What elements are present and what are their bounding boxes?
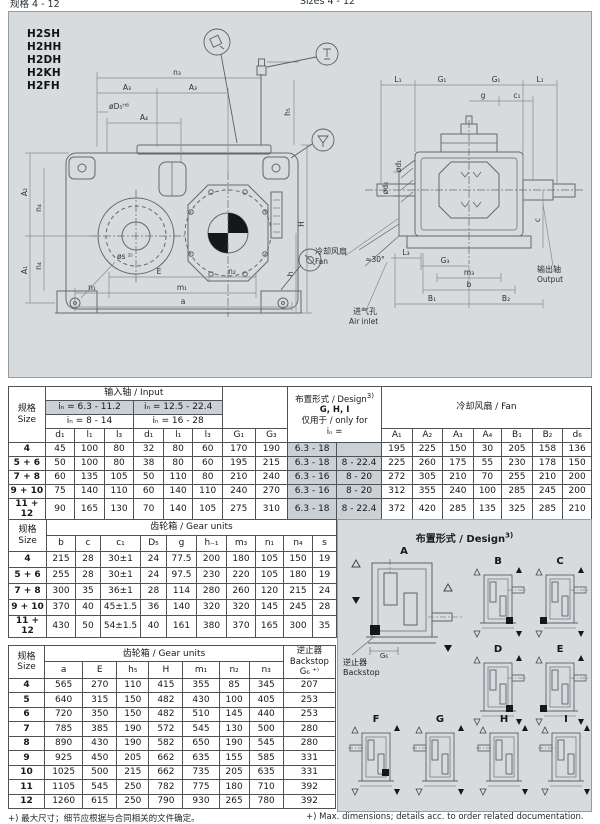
- value-cell: 210: [222, 471, 255, 485]
- value-cell: 890: [45, 736, 83, 751]
- dim-e: E: [157, 267, 162, 276]
- dim-g6: G₆: [380, 652, 388, 660]
- value-cell: 285: [443, 499, 474, 521]
- table-row: 7 + 86013510550110802102406.3 - 168 - 20…: [9, 471, 592, 485]
- value-cell: 300: [284, 616, 313, 638]
- value-cell: 585: [249, 751, 283, 766]
- value-cell: 785: [45, 722, 83, 737]
- column-letter: g: [167, 536, 197, 552]
- size-cell: 4: [9, 678, 45, 693]
- value-cell: 482: [149, 693, 183, 708]
- column-letter: D₅: [141, 536, 167, 552]
- drawing-panel: n₃ A₃ A₃ øD₅ᴴ⁸ A₄ h₅ H h A₂ n₄ A₁ n₄ øs …: [8, 11, 592, 378]
- gear-units-table-2: 规格Size 齿轮箱 / Gear units 逆止器 Backstop G₆ …: [8, 645, 336, 809]
- size-cell: 9: [9, 751, 45, 766]
- value-cell: [337, 443, 382, 457]
- model-list: H2SH H2HH H2DH H2KH H2FH: [27, 28, 61, 93]
- column-letter: B₂: [532, 429, 563, 443]
- value-cell: 105: [256, 568, 284, 584]
- value-cell: 110: [193, 485, 223, 499]
- value-cell: 30±1: [101, 568, 141, 584]
- column-letter: H: [149, 662, 183, 678]
- design-diagram-F: F: [348, 714, 404, 802]
- value-cell: 28: [76, 552, 101, 568]
- value-cell: 24: [141, 568, 167, 584]
- value-cell: 430: [47, 616, 76, 638]
- dim-n4-bottom: n₄: [34, 262, 43, 270]
- value-cell: 80: [163, 443, 193, 457]
- value-cell: 405: [249, 693, 283, 708]
- value-cell: 45±1.5: [101, 600, 141, 616]
- value-cell: 50: [134, 471, 164, 485]
- callout-output-en: Output: [537, 275, 563, 284]
- value-cell: 640: [45, 693, 83, 708]
- size-cell: 10: [9, 765, 45, 780]
- table-row: 11 + 124305054±1.54016138037016530035: [9, 616, 337, 638]
- value-cell: 135: [473, 499, 502, 521]
- input-group-header: 输入轴 / Input: [45, 387, 222, 401]
- callout-fan-en: Fan: [315, 257, 328, 266]
- value-cell: 8 - 20: [337, 485, 382, 499]
- dim-h5: h₅: [283, 108, 292, 116]
- column-letter: A₃: [443, 429, 474, 443]
- backstop-label: 逆止器 Backstop: [343, 658, 380, 678]
- gear-units-group-header: 齿轮箱 / Gear units: [47, 520, 337, 536]
- value-cell: 210: [563, 499, 592, 521]
- value-cell: 110: [104, 485, 134, 499]
- value-cell: 130: [104, 499, 134, 521]
- value-cell: 440: [249, 707, 283, 722]
- table-row: 5 + 62552830±12497.523022010518019: [9, 568, 337, 584]
- value-cell: 250: [117, 780, 149, 795]
- backstop-square: [506, 617, 513, 624]
- dim-a4: A₄: [140, 113, 148, 122]
- value-cell: 210: [443, 471, 474, 485]
- value-cell: 225: [381, 457, 412, 471]
- value-cell: 345: [249, 678, 283, 693]
- value-cell: 100: [473, 485, 502, 499]
- value-cell: 662: [149, 765, 183, 780]
- value-cell: 30: [473, 443, 502, 457]
- value-cell: 6.3 - 18: [288, 499, 337, 521]
- table-row: 42152830±12477.520018010515019: [9, 552, 337, 568]
- column-letter: c₁: [101, 536, 141, 552]
- value-cell: 240: [222, 485, 255, 499]
- design-group-header: 布置形式 / Design3) G, H, I 仅用于 / only for i…: [288, 387, 382, 443]
- callout-output-zh: 输出轴: [537, 264, 561, 274]
- value-cell: 510: [183, 707, 219, 722]
- design-panel-title: 布置形式 / Design3): [338, 530, 591, 545]
- value-cell: 6.3 - 18: [288, 457, 337, 471]
- value-cell: 200: [563, 485, 592, 499]
- callout-air-inlet-en: Air inlet: [349, 317, 378, 326]
- value-cell: 207: [283, 678, 335, 693]
- dim-a: a: [181, 297, 186, 306]
- value-cell: 155: [219, 751, 249, 766]
- table-row: 121260615250790930265780392: [9, 794, 336, 809]
- dim-l1-left: L₁: [394, 75, 401, 84]
- value-cell: 710: [249, 780, 283, 795]
- column-letter: A₁: [381, 429, 412, 443]
- value-cell: 190: [219, 736, 249, 751]
- value-cell: 30±1: [101, 552, 141, 568]
- design-letter: B: [470, 556, 526, 567]
- dim-d5: øD₅ᴴ⁸: [109, 102, 129, 111]
- model-name: H2SH: [27, 28, 61, 41]
- dim-g3: G₃: [441, 256, 450, 265]
- value-cell: 220: [227, 568, 256, 584]
- table-row: 7785385190572545130500280: [9, 722, 336, 737]
- value-cell: 255: [47, 568, 76, 584]
- value-cell: 582: [149, 736, 183, 751]
- table-row: 7 + 83003536±12811428026012021524: [9, 584, 337, 600]
- value-cell: 565: [45, 678, 83, 693]
- value-cell: 150: [117, 693, 149, 708]
- design-letter: C: [532, 556, 588, 567]
- value-cell: 245: [532, 485, 563, 499]
- gearbox-schematic: [476, 725, 532, 797]
- value-cell: 140: [75, 485, 105, 499]
- value-cell: 24: [141, 552, 167, 568]
- value-cell: 110: [117, 678, 149, 693]
- value-cell: 110: [163, 471, 193, 485]
- design-letter: D: [470, 644, 526, 655]
- value-cell: 150: [284, 552, 313, 568]
- value-cell: 215: [284, 584, 313, 600]
- g-columns-spacer: [222, 387, 287, 429]
- dim-s: øs ²⁾: [117, 252, 133, 261]
- size-header: 规格Size: [9, 646, 45, 679]
- column-letter: A₄: [473, 429, 502, 443]
- value-cell: 305: [412, 471, 443, 485]
- value-cell: 270: [255, 485, 288, 499]
- front-view-dimension-lines: [25, 62, 312, 313]
- size-cell: 4: [9, 443, 46, 457]
- design-letter: A: [344, 546, 464, 557]
- value-cell: 240: [255, 471, 288, 485]
- column-letter: n₁: [256, 536, 284, 552]
- value-cell: 355: [183, 678, 219, 693]
- dim-c1: c₁: [513, 91, 520, 100]
- value-cell: 782: [149, 780, 183, 795]
- value-cell: 200: [563, 471, 592, 485]
- dim-a1: A₁: [20, 266, 29, 274]
- table-row: 9 + 1075140110601401102402706.3 - 168 - …: [9, 485, 592, 499]
- column-letter: G₃: [255, 429, 288, 443]
- design-diagram-H: H: [476, 714, 532, 802]
- design-letter: I: [538, 714, 594, 725]
- table-row: 5 + 650100803880601952156.3 - 188 - 22.4…: [9, 457, 592, 471]
- value-cell: 320: [197, 600, 227, 616]
- value-cell: 215: [47, 552, 76, 568]
- value-cell: 230: [197, 568, 227, 584]
- value-cell: 545: [83, 780, 117, 795]
- value-cell: 245: [284, 600, 313, 616]
- input-dimensions-table: 规格Size 输入轴 / Input 布置形式 / Design3) G, H,…: [8, 386, 592, 521]
- table-row: 5640315150482430100405253: [9, 693, 336, 708]
- value-cell: 1105: [45, 780, 83, 795]
- value-cell: 280: [283, 736, 335, 751]
- value-cell: 135: [75, 471, 105, 485]
- value-cell: 178: [532, 457, 563, 471]
- column-letter: b: [47, 536, 76, 552]
- value-cell: 8 - 20: [337, 471, 382, 485]
- gearbox-schematic: [538, 725, 594, 797]
- column-letter: n₂: [219, 662, 249, 678]
- side-view: [359, 116, 585, 266]
- value-cell: 150: [117, 707, 149, 722]
- column-letter: d₆: [563, 429, 592, 443]
- size-cell: 5: [9, 693, 45, 708]
- dim-H: H: [297, 221, 306, 227]
- value-cell: 265: [219, 794, 249, 809]
- dim-n4-top: n₄: [34, 204, 43, 212]
- value-cell: 35: [76, 584, 101, 600]
- value-cell: 253: [283, 693, 335, 708]
- column-letter: m₃: [227, 536, 256, 552]
- dim-b2: B₂: [502, 294, 510, 303]
- value-cell: 28: [76, 568, 101, 584]
- value-cell: 165: [256, 616, 284, 638]
- size-cell: 11 + 12: [9, 616, 47, 638]
- value-cell: 780: [249, 794, 283, 809]
- value-cell: 195: [381, 443, 412, 457]
- value-cell: 205: [117, 751, 149, 766]
- value-cell: 500: [249, 722, 283, 737]
- value-cell: 80: [104, 457, 134, 471]
- value-cell: 77.5: [167, 552, 197, 568]
- callout-fan-zh: 冷却风扇: [315, 246, 347, 256]
- value-cell: 280: [283, 722, 335, 737]
- gearbox-schematic: [348, 725, 404, 797]
- value-cell: 180: [219, 780, 249, 795]
- value-cell: 50: [76, 616, 101, 638]
- dim-d6: ød₆: [381, 182, 390, 194]
- callout-air-inlet-zh: 进气孔: [353, 306, 377, 316]
- value-cell: 195: [222, 457, 255, 471]
- value-cell: 300: [47, 584, 76, 600]
- value-cell: 140: [167, 600, 197, 616]
- gearbox-schematic: G₆: [344, 557, 464, 661]
- column-letter: d₁: [45, 429, 75, 443]
- gear-units-group-header: 齿轮箱 / Gear units: [45, 646, 284, 662]
- size-cell: 9 + 10: [9, 485, 46, 499]
- model-name: H2FH: [27, 80, 61, 93]
- value-cell: 205: [502, 443, 533, 457]
- table-row: 456527011041535585345207: [9, 678, 336, 693]
- column-letter: c: [76, 536, 101, 552]
- value-cell: 40: [141, 616, 167, 638]
- footnote-zh: +) 最大尺寸；细节应根据与合同相关的文件确定。: [8, 812, 200, 824]
- value-cell: 35: [313, 616, 337, 638]
- value-cell: 158: [532, 443, 563, 457]
- page-header-right: Sizes 4 - 12: [300, 0, 355, 7]
- column-letter: G₁: [222, 429, 255, 443]
- value-cell: 250: [117, 794, 149, 809]
- value-cell: 240: [443, 485, 474, 499]
- dim-n1: n₁: [88, 283, 96, 292]
- value-cell: 105: [256, 552, 284, 568]
- design-letter: E: [532, 644, 588, 655]
- value-cell: 331: [283, 751, 335, 766]
- value-cell: 140: [163, 499, 193, 521]
- value-cell: 210: [532, 471, 563, 485]
- value-cell: 161: [167, 616, 197, 638]
- column-letters-row: bcc₁D₅gh₋₁m₃n₁n₄s: [9, 536, 337, 552]
- column-letter: B₁: [502, 429, 533, 443]
- value-cell: 325: [502, 499, 533, 521]
- value-cell: 136: [563, 443, 592, 457]
- value-cell: 355: [412, 485, 443, 499]
- design-letter: H: [476, 714, 532, 725]
- value-cell: 260: [412, 457, 443, 471]
- value-cell: 420: [412, 499, 443, 521]
- dim-l3: L₃: [402, 248, 409, 257]
- column-letter: a: [45, 662, 83, 678]
- value-cell: 140: [163, 485, 193, 499]
- ratio-range-b1: iₙ = 12.5 - 22.4: [134, 401, 223, 415]
- size-cell: 4: [9, 552, 47, 568]
- value-cell: 75: [45, 485, 75, 499]
- table-row: 101025500215662735205635331: [9, 765, 336, 780]
- value-cell: 6.3 - 16: [288, 471, 337, 485]
- value-cell: 120: [256, 584, 284, 600]
- value-cell: 60: [193, 457, 223, 471]
- column-letter: h₋₁: [197, 536, 227, 552]
- value-cell: 285: [502, 485, 533, 499]
- table-row: 6720350150482510145440253: [9, 707, 336, 722]
- model-name: H2DH: [27, 54, 61, 67]
- value-cell: 392: [283, 794, 335, 809]
- dim-angle: ≈30°: [365, 255, 385, 264]
- size-cell: 7: [9, 722, 45, 737]
- value-cell: 225: [412, 443, 443, 457]
- value-cell: 80: [163, 457, 193, 471]
- column-letter: n₄: [284, 536, 313, 552]
- value-cell: 270: [83, 678, 117, 693]
- dim-b: b: [467, 280, 472, 289]
- dim-g: g: [481, 91, 486, 100]
- size-cell: 5 + 6: [9, 457, 46, 471]
- value-cell: 36: [141, 600, 167, 616]
- value-cell: 80: [193, 471, 223, 485]
- column-letter: l₁: [163, 429, 193, 443]
- value-cell: 215: [255, 457, 288, 471]
- design-arrangements-panel: 布置形式 / Design3) A G₆: [337, 519, 592, 812]
- value-cell: 662: [149, 751, 183, 766]
- column-letter: m₁: [183, 662, 219, 678]
- value-cell: 260: [227, 584, 256, 600]
- value-cell: 150: [443, 443, 474, 457]
- value-cell: 180: [284, 568, 313, 584]
- front-view: [55, 59, 303, 317]
- value-cell: 190: [117, 736, 149, 751]
- ratio-range-a2: iₙ = 8 - 14: [45, 415, 134, 429]
- value-cell: 775: [183, 780, 219, 795]
- table-row: 111105545250782775180710392: [9, 780, 336, 795]
- value-cell: 28: [313, 600, 337, 616]
- value-cell: 370: [47, 600, 76, 616]
- design-letter: F: [348, 714, 404, 725]
- ratio-range-a1: iₙ = 6.3 - 11.2: [45, 401, 134, 415]
- value-cell: 145: [219, 707, 249, 722]
- value-cell: 320: [227, 600, 256, 616]
- value-cell: 114: [167, 584, 197, 600]
- value-cell: 97.5: [167, 568, 197, 584]
- backstop-square: [382, 769, 389, 776]
- size-cell: 8: [9, 736, 45, 751]
- value-cell: 190: [255, 443, 288, 457]
- value-cell: 205: [219, 765, 249, 780]
- value-cell: 312: [381, 485, 412, 499]
- value-cell: 100: [75, 443, 105, 457]
- fan-group-header: 冷却风扇 / Fan: [381, 387, 591, 429]
- value-cell: 372: [381, 499, 412, 521]
- table-row: 9 + 103704045±1.53614032032014524528: [9, 600, 337, 616]
- design-diagram-B: B: [470, 556, 526, 640]
- value-cell: 60: [193, 443, 223, 457]
- dim-a3-right: A₃: [189, 83, 197, 92]
- value-cell: 45: [45, 443, 75, 457]
- value-cell: 105: [104, 471, 134, 485]
- dim-n2: n₂: [228, 267, 236, 276]
- value-cell: 32: [134, 443, 164, 457]
- value-cell: 90: [45, 499, 75, 521]
- value-cell: 70: [473, 471, 502, 485]
- value-cell: 925: [45, 751, 83, 766]
- value-cell: 1260: [45, 794, 83, 809]
- table-row: 445100803280601701906.3 - 18195225150302…: [9, 443, 592, 457]
- size-header: 规格Size: [9, 520, 47, 552]
- value-cell: 370: [227, 616, 256, 638]
- design-letter: G: [412, 714, 468, 725]
- backstop-header: 逆止器 Backstop G₆ ⁺⁾: [283, 646, 335, 679]
- value-cell: 285: [532, 499, 563, 521]
- value-cell: 190: [117, 722, 149, 737]
- table-header-row: 规格Size 输入轴 / Input 布置形式 / Design3) G, H,…: [9, 387, 592, 401]
- value-cell: 253: [283, 707, 335, 722]
- value-cell: 8 - 22.4: [337, 499, 382, 521]
- value-cell: 175: [443, 457, 474, 471]
- model-name: H2KH: [27, 67, 61, 80]
- value-cell: 310: [255, 499, 288, 521]
- value-cell: 215: [117, 765, 149, 780]
- value-cell: 130: [219, 722, 249, 737]
- backstop-square: [540, 617, 547, 624]
- dim-g1-right: G₁: [492, 75, 501, 84]
- value-cell: 380: [197, 616, 227, 638]
- value-cell: 430: [183, 693, 219, 708]
- value-cell: 615: [83, 794, 117, 809]
- value-cell: 60: [134, 485, 164, 499]
- size-cell: 7 + 8: [9, 584, 47, 600]
- value-cell: 430: [83, 736, 117, 751]
- backstop-square: [540, 705, 547, 712]
- value-cell: 500: [83, 765, 117, 780]
- value-cell: 105: [193, 499, 223, 521]
- value-cell: 1025: [45, 765, 83, 780]
- dim-d1: ød₁: [394, 160, 403, 172]
- model-name: H2HH: [27, 41, 61, 54]
- design-diagram-I: I: [538, 714, 594, 802]
- dim-a3-left: A₃: [123, 83, 131, 92]
- value-cell: 482: [149, 707, 183, 722]
- value-cell: 170: [222, 443, 255, 457]
- value-cell: 36±1: [101, 584, 141, 600]
- value-cell: 200: [197, 552, 227, 568]
- size-cell: 7 + 8: [9, 471, 46, 485]
- value-cell: 720: [45, 707, 83, 722]
